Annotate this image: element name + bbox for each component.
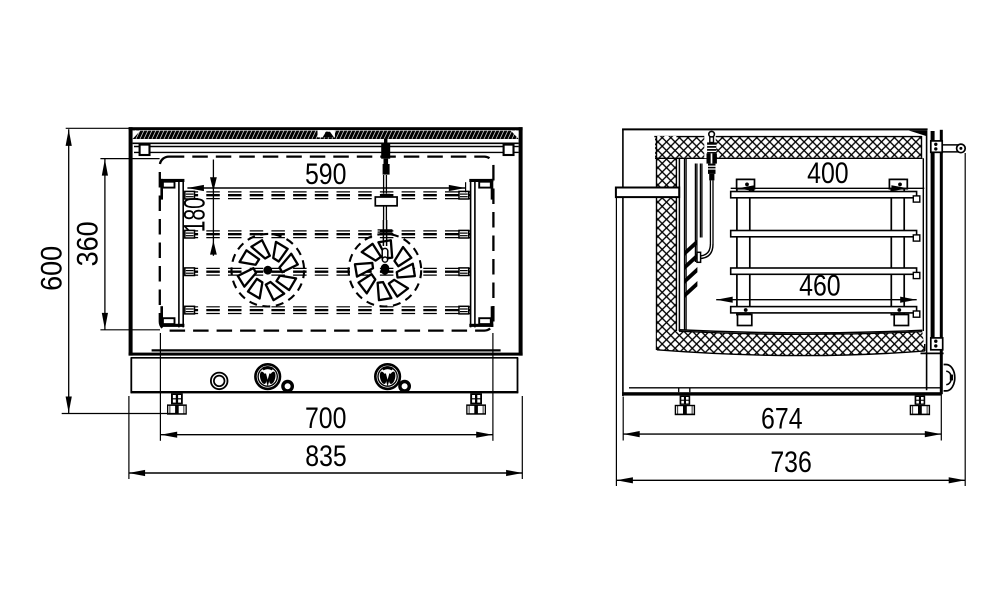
svg-text:736: 736 <box>770 446 812 479</box>
svg-text:835: 835 <box>305 440 347 473</box>
svg-text:360: 360 <box>72 221 105 266</box>
svg-text:700: 700 <box>305 402 347 435</box>
svg-text:590: 590 <box>305 158 347 191</box>
svg-text:600: 600 <box>35 246 68 291</box>
svg-text:180: 180 <box>179 197 212 232</box>
svg-text:674: 674 <box>761 402 803 435</box>
svg-text:460: 460 <box>799 270 841 303</box>
svg-text:400: 400 <box>807 157 849 190</box>
